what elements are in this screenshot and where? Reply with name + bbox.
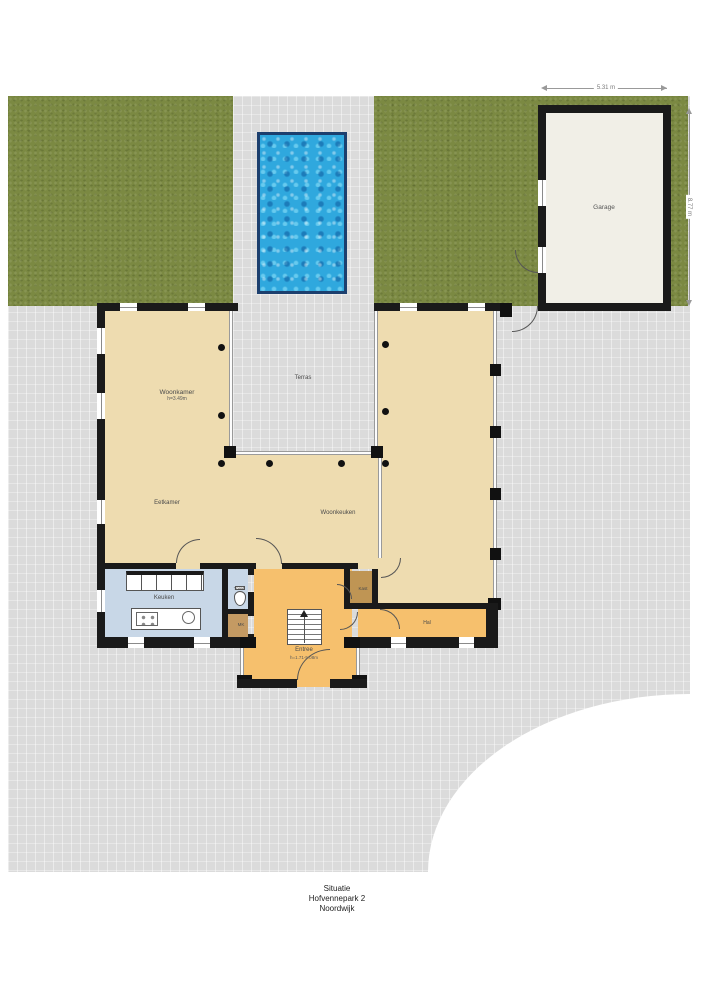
dimension-arrow-up-icon — [686, 108, 692, 114]
wall-interior — [103, 563, 176, 569]
wall-kast-bottom — [344, 603, 358, 609]
dimension-arrow-down-icon — [686, 300, 692, 306]
porch-post — [240, 637, 256, 648]
stairs-up-arrow-icon — [300, 610, 308, 617]
stairs-direction-line — [304, 615, 305, 643]
column — [218, 460, 225, 467]
toilet-label: Toilet — [234, 585, 245, 592]
column — [266, 460, 273, 467]
window — [400, 303, 417, 311]
column — [382, 408, 389, 415]
terras-glass-wall-left — [229, 309, 233, 455]
kast-label-text: Kast — [358, 586, 367, 591]
terras-label: Terras — [295, 375, 312, 382]
porch-glass-wall-left — [240, 648, 244, 676]
plan-caption: Situatie Hofvennepark 2 Noordwijk — [267, 884, 407, 914]
meterkast-label-text: MK — [238, 622, 245, 627]
glass-wall-post — [490, 548, 501, 560]
wall-north-woonkamer — [97, 303, 238, 311]
terras-glass-wall-right — [374, 309, 378, 455]
dimension-arrow-right-icon — [661, 85, 667, 91]
woonkeuken-label-text: Woonkeuken — [321, 510, 356, 516]
window — [97, 328, 105, 354]
window — [97, 590, 105, 612]
wall-toilet-entree — [248, 592, 254, 616]
woonkamer-label-text: Woonkamer — [160, 389, 195, 396]
wall-north-woonkeuken — [374, 303, 512, 311]
porch-front-wall — [330, 679, 367, 688]
eetkamer-label-text: Eetkamer — [154, 500, 180, 506]
meterkast-label: MK — [238, 621, 245, 628]
wall-keuken-toilet — [222, 563, 228, 645]
window — [391, 637, 406, 648]
floorplan-canvas: 5.31 m 8.77 m — [0, 0, 707, 1000]
wall-south-hal — [360, 637, 498, 648]
entree-label-text: Entree — [290, 647, 318, 654]
caption-title: Situatie — [267, 884, 407, 894]
keuken-label: Keuken — [154, 595, 174, 602]
hal-label-text: Hal — [423, 620, 431, 626]
porch-post — [344, 637, 360, 648]
wall-toilet-entree — [248, 563, 254, 575]
woonkamer-height-text: h=3.49m — [160, 396, 195, 403]
toilet-label-text: Toilet — [234, 586, 245, 591]
dimension-arrow-left-icon — [541, 85, 547, 91]
garage-window — [538, 180, 546, 206]
column — [338, 460, 345, 467]
garage-door-opening — [538, 247, 546, 273]
terras-corner-post — [224, 446, 236, 458]
window — [468, 303, 485, 311]
caption-city: Noordwijk — [267, 904, 407, 914]
woonkamer-label: Woonkamer h=3.49m — [160, 389, 195, 403]
glass-wall-post — [490, 488, 501, 500]
terras-label-text: Terras — [295, 375, 312, 381]
column — [382, 460, 389, 467]
woonkeuken-label: Woonkeuken — [321, 510, 356, 517]
wall-corner-post — [500, 303, 512, 317]
column — [218, 412, 225, 419]
window — [459, 637, 474, 648]
garage-label-text: Garage — [593, 204, 615, 211]
entree-label: Entree h=1.71-5.08m — [290, 647, 318, 661]
sink-icon — [182, 611, 195, 624]
woonkeuken-glass-wall-east — [493, 309, 497, 607]
entree-height-text: h=1.71-5.08m — [290, 654, 318, 661]
column — [382, 341, 389, 348]
swimming-pool — [257, 132, 347, 294]
cooktop-icon — [136, 612, 158, 626]
caption-address: Hofvennepark 2 — [267, 894, 407, 904]
woonkeuken-glass-wall-west — [378, 458, 382, 558]
porch-glass-wall-right — [356, 648, 360, 676]
garage-width-dimension: 5.31 m — [594, 85, 618, 91]
wall-kast-right — [372, 569, 378, 609]
kast-label: Kast — [358, 585, 367, 592]
window — [120, 303, 137, 311]
garage-depth-dimension: 8.77 m — [686, 195, 692, 219]
window — [194, 637, 210, 648]
hal-label: Hal — [423, 620, 431, 627]
window — [188, 303, 205, 311]
terras-corner-post — [371, 446, 383, 458]
terras-glass-wall-bottom — [229, 451, 378, 455]
window — [97, 393, 105, 419]
garage-label: Garage — [593, 204, 615, 211]
column — [218, 344, 225, 351]
porch-front-wall — [237, 679, 297, 688]
window — [128, 637, 144, 648]
glass-wall-post — [490, 364, 501, 376]
window — [97, 500, 105, 524]
glass-wall-post — [490, 426, 501, 438]
kitchen-counter — [126, 571, 204, 591]
wall-east-hal — [486, 603, 498, 648]
eetkamer-label: Eetkamer — [154, 500, 180, 507]
keuken-label-text: Keuken — [154, 595, 174, 601]
